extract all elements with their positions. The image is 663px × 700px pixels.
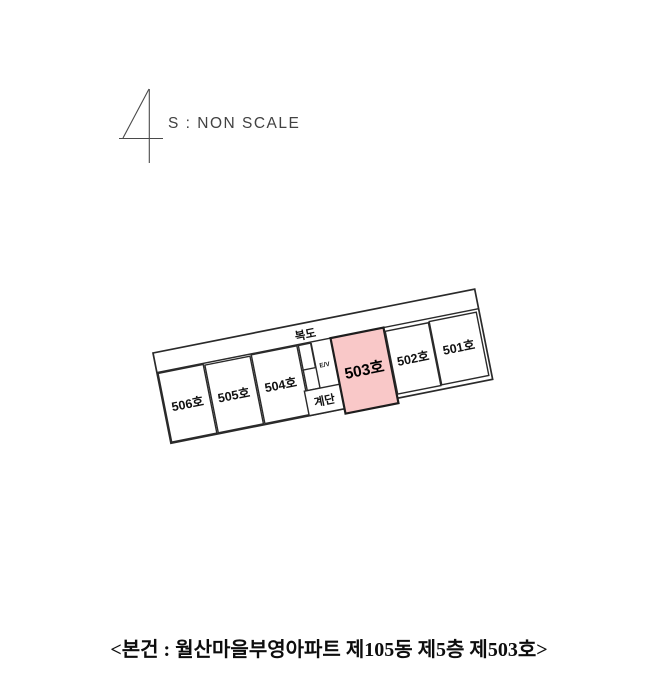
scanned-floor-plan-page: S : NON SCALE 복도 506호 505호 504호 E/V 계단	[0, 0, 663, 700]
scale-note-text: S : NON SCALE	[168, 115, 300, 132]
figure-number-4-glyph	[119, 89, 163, 163]
floor-plan-canvas: S : NON SCALE 복도 506호 505호 504호 E/V 계단	[0, 0, 663, 700]
building-plan-group: 복도 506호 505호 504호 E/V 계단 503호 502호 501호	[153, 289, 494, 448]
caption-subject-property: <본건 : 월산마을부영아파트 제105동 제5층 제503호>	[110, 638, 547, 661]
figure-4-diagonal-line	[123, 89, 149, 138]
